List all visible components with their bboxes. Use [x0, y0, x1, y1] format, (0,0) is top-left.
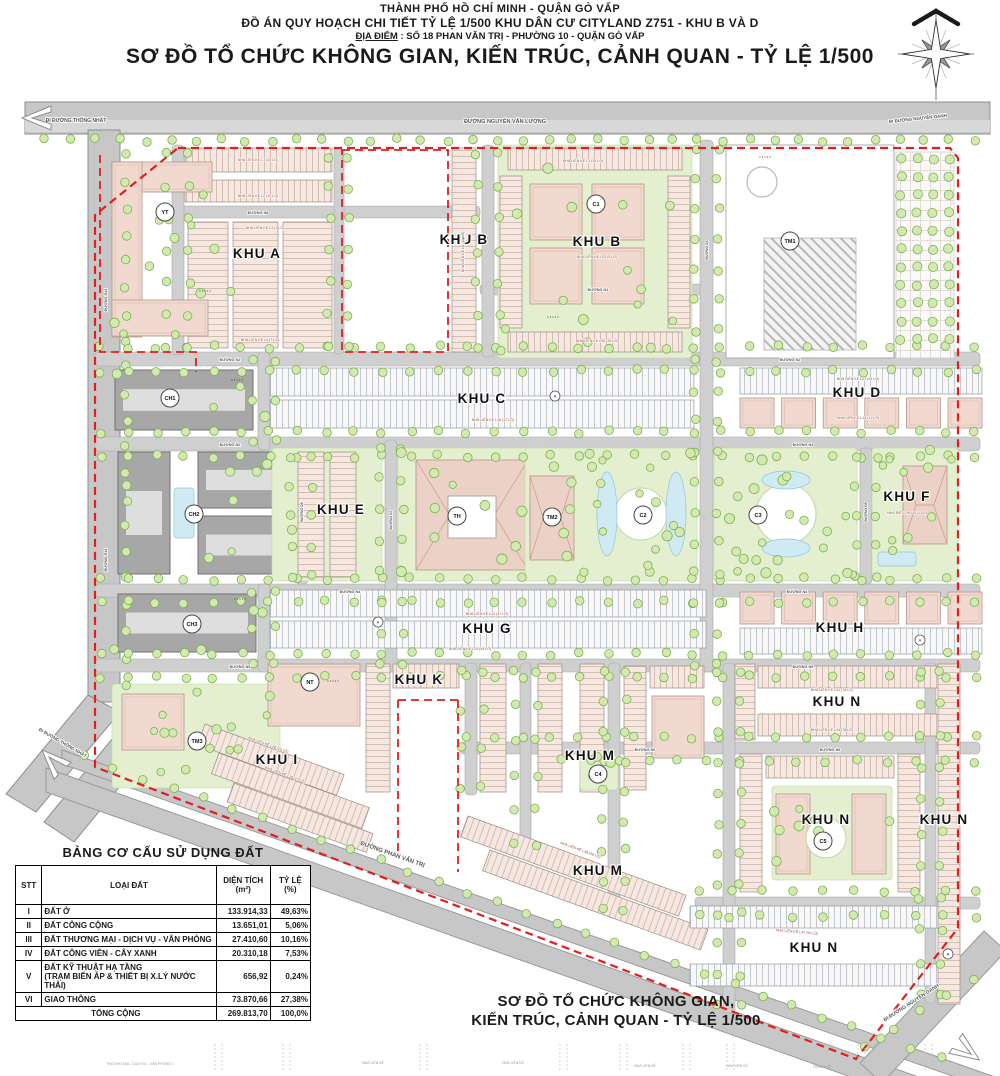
tree-icon	[192, 137, 201, 146]
tree-icon	[718, 652, 727, 661]
tree-icon	[531, 735, 540, 744]
entrance-dots: • • • • •	[199, 288, 211, 293]
land-use-total-row: TỔNG CỘNG269.813,70100,0%	[16, 1007, 311, 1021]
tree-icon	[773, 650, 782, 659]
cell-stt: V	[16, 961, 42, 993]
road-label: ĐƯỜNG N2	[780, 357, 801, 362]
col-stt: STT	[16, 866, 42, 905]
tree-icon	[896, 191, 905, 200]
marker-label: A	[919, 638, 922, 643]
tree-icon	[547, 673, 556, 682]
tree-icon	[713, 938, 722, 947]
tree-icon	[585, 449, 594, 458]
tree-icon	[327, 214, 336, 223]
land-use-header-row: STT LOẠI ĐẤT DIỆN TÍCH (m²) TỶ LỆ (%)	[16, 866, 311, 905]
tree-icon	[262, 459, 272, 469]
tree-icon	[971, 137, 980, 146]
tree-icon	[154, 429, 163, 438]
tree-icon	[714, 387, 723, 396]
tree-icon	[161, 343, 170, 352]
street	[465, 663, 477, 795]
tree-icon	[327, 277, 336, 286]
tree-icon	[794, 135, 803, 144]
tree-icon	[689, 599, 698, 608]
tree-icon	[755, 911, 764, 920]
tree-icon	[182, 674, 191, 683]
tree-icon	[598, 815, 607, 824]
building	[740, 398, 774, 428]
tree-icon	[349, 427, 358, 436]
tree-icon	[690, 629, 699, 638]
zone-label: KHU F	[883, 489, 930, 504]
tree-icon	[800, 573, 809, 582]
tree-icon	[843, 568, 852, 577]
tree-icon	[184, 214, 193, 223]
rowhouse-strip	[480, 664, 506, 792]
map-caption: SƠ ĐỒ TỔ CHỨC KHÔNG GIAN, KIẾN TRÚC, CẢN…	[440, 992, 792, 1030]
tree-icon	[95, 369, 104, 378]
tree-icon	[98, 597, 107, 606]
tree-icon	[476, 782, 485, 791]
tree-icon	[769, 807, 779, 817]
tree-icon	[375, 473, 384, 482]
tree-icon	[688, 674, 697, 683]
tree-icon	[912, 208, 921, 217]
tree-icon	[700, 970, 709, 979]
tree-icon	[110, 645, 119, 654]
road-label: ĐƯỜNG N8	[248, 210, 269, 215]
tree-icon	[695, 887, 704, 896]
tree-icon	[737, 819, 746, 828]
tree-icon	[350, 454, 359, 463]
tree-icon	[831, 575, 840, 584]
tree-icon	[248, 624, 257, 633]
tree-icon	[725, 913, 734, 922]
tree-icon	[853, 541, 862, 550]
tree-icon	[745, 671, 754, 680]
tree-icon	[471, 278, 480, 287]
parcel-boundary	[398, 700, 458, 872]
tree-icon	[645, 135, 654, 144]
tree-icon	[896, 335, 905, 344]
tree-icon	[170, 784, 179, 793]
tree-icon	[691, 509, 700, 518]
tree-icon	[880, 888, 889, 897]
tree-icon	[792, 758, 801, 767]
tree-icon	[942, 574, 951, 583]
tree-icon	[511, 541, 521, 551]
tree-icon	[183, 149, 192, 158]
cell-ty-le: 10,16%	[270, 933, 310, 947]
tree-icon	[724, 513, 734, 523]
facility-label: C4	[594, 772, 602, 778]
tree-icon	[160, 728, 169, 737]
tree-icon	[157, 768, 165, 776]
tree-icon	[686, 448, 696, 458]
tree-icon	[944, 135, 953, 144]
tree-icon	[324, 342, 333, 351]
tree-icon	[236, 451, 245, 460]
tree-icon	[210, 367, 219, 376]
tree-icon	[587, 462, 596, 471]
tree-icon	[972, 887, 981, 896]
building	[852, 794, 886, 874]
tree-icon	[343, 312, 352, 321]
tree-icon	[929, 173, 938, 182]
tree-icon	[124, 596, 133, 605]
building	[948, 398, 982, 428]
facility-label: NT	[306, 680, 314, 686]
tree-icon	[378, 598, 387, 607]
tree-icon	[210, 244, 219, 253]
tree-icon	[660, 365, 669, 374]
address-label: ĐỊA ĐIỂM	[355, 31, 397, 42]
tree-icon	[124, 673, 133, 682]
tree-icon	[206, 744, 214, 752]
tree-icon	[728, 886, 737, 895]
tree-icon	[885, 596, 894, 605]
tree-icon	[212, 725, 222, 735]
tree-icon	[785, 510, 793, 518]
tree-icon	[605, 344, 614, 353]
tree-icon	[716, 369, 725, 378]
tree-icon	[660, 732, 669, 741]
tree-icon	[152, 672, 161, 681]
road-label: ĐƯỜNG N5	[793, 664, 814, 669]
tree-icon	[464, 367, 473, 376]
tree-icon	[714, 758, 723, 767]
tree-icon	[859, 369, 868, 378]
tree-icon	[849, 911, 858, 920]
tree-icon	[859, 597, 868, 606]
tree-icon	[688, 651, 697, 660]
tree-icon	[935, 798, 944, 807]
tree-icon	[295, 344, 304, 353]
building	[782, 398, 816, 428]
sheet-title: SƠ ĐỒ TỔ CHỨC KHÔNG GIAN, KIẾN TRÚC, CẢN…	[0, 45, 1000, 69]
tree-icon	[847, 1022, 856, 1031]
tree-icon	[183, 312, 192, 321]
tree-icon	[376, 429, 385, 438]
section-strip-label: THƯƠNG MẠI - DỊCH VỤ - VĂN PHÒNG 1	[106, 1061, 174, 1066]
tree-icon	[350, 598, 359, 607]
tree-icon	[896, 263, 905, 272]
tree-icon	[831, 427, 840, 436]
tree-icon	[519, 453, 528, 462]
tree-icon	[897, 227, 906, 236]
tree-icon	[492, 367, 501, 376]
tree-icon	[480, 500, 490, 510]
tree-icon	[436, 341, 445, 350]
tree-icon	[434, 426, 443, 435]
road-label: ĐƯỜNG D14	[103, 548, 108, 572]
tree-icon	[916, 960, 925, 969]
tree-icon	[610, 938, 619, 947]
tree-icon	[122, 150, 131, 159]
tree-icon	[179, 576, 188, 585]
tree-icon	[187, 221, 195, 229]
tree-icon	[264, 426, 273, 435]
cell-ty-le: 49,63%	[270, 905, 310, 919]
tree-icon	[621, 877, 630, 886]
road-label: ĐƯỜNG D7	[388, 510, 393, 529]
tree-icon	[652, 545, 660, 553]
tree-icon	[945, 317, 954, 326]
caption-line1: SƠ ĐỒ TỔ CHỨC KHÔNG GIAN,	[440, 992, 792, 1011]
tree-icon	[308, 571, 317, 580]
tree-icon	[818, 1014, 827, 1023]
tree-icon	[573, 733, 582, 742]
road-label: ĐƯỜNG D14	[103, 288, 108, 312]
tree-icon	[897, 209, 906, 218]
tree-icon	[883, 758, 892, 767]
tree-icon	[376, 660, 385, 669]
tree-icon	[575, 597, 584, 606]
tree-icon	[522, 910, 531, 919]
tree-icon	[970, 453, 979, 462]
tree-icon	[575, 452, 584, 461]
tree-icon	[714, 267, 723, 276]
cell-stt: VI	[16, 993, 42, 1007]
street	[723, 663, 735, 1013]
tree-icon	[123, 232, 132, 241]
tree-icon	[945, 298, 954, 307]
tree-icon	[477, 744, 486, 753]
rowhouse-strip	[690, 964, 952, 986]
tree-icon	[897, 298, 906, 307]
tree-icon	[636, 490, 644, 498]
tree-icon	[887, 426, 896, 435]
tree-icon	[593, 500, 601, 508]
tree-icon	[208, 650, 217, 659]
tree-icon	[761, 568, 771, 578]
tree-icon	[818, 138, 827, 147]
header-address-line: ĐỊA ĐIỂM : SỐ 18 PHAN VĂN TRỊ - PHƯỜNG 1…	[0, 31, 1000, 42]
building	[865, 592, 899, 624]
tree-icon	[436, 599, 445, 608]
tree-icon	[885, 651, 894, 660]
tree-icon	[691, 355, 700, 364]
tree-icon	[122, 312, 131, 321]
tree-icon	[234, 745, 243, 754]
tree-icon	[744, 651, 753, 660]
cell-loai: GIAO THÔNG	[42, 993, 216, 1007]
tree-icon	[871, 135, 880, 144]
tree-icon	[774, 574, 783, 583]
tree-icon	[927, 513, 935, 521]
tree-icon	[772, 674, 781, 683]
tree-icon	[872, 483, 881, 492]
road-label: ĐƯỜNG N3	[793, 442, 814, 447]
tree-icon	[227, 287, 235, 295]
tree-icon	[915, 731, 924, 740]
block-label: NHÀ LIÊN KẾ L41 (78 LÔ)	[811, 687, 854, 692]
tree-icon	[829, 650, 838, 659]
tree-icon	[821, 758, 830, 767]
tree-icon	[532, 668, 541, 677]
tree-icon	[735, 697, 744, 706]
tree-icon	[662, 531, 672, 541]
tree-icon	[510, 771, 519, 780]
tree-icon	[874, 454, 883, 463]
tree-icon	[170, 233, 179, 242]
tree-icon	[121, 469, 130, 478]
tree-icon	[690, 567, 699, 576]
tree-icon	[599, 528, 607, 536]
tree-icon	[929, 280, 938, 289]
tree-icon	[490, 734, 499, 743]
tree-icon	[266, 651, 275, 660]
tree-icon	[580, 568, 588, 576]
tree-icon	[735, 849, 744, 858]
tree-icon	[217, 134, 226, 143]
tree-icon	[393, 134, 402, 143]
tree-icon	[690, 366, 699, 375]
tree-icon	[324, 182, 333, 191]
tree-icon	[162, 247, 171, 256]
tree-icon	[208, 674, 217, 683]
facility-label: C2	[639, 513, 646, 519]
tree-icon	[181, 428, 190, 437]
tree-icon	[749, 484, 759, 494]
tree-icon	[435, 648, 444, 657]
road-label: ĐƯỜNG N4	[340, 589, 362, 594]
tree-icon	[407, 452, 416, 461]
tree-icon	[719, 137, 728, 146]
tree-icon	[913, 190, 922, 199]
tree-icon	[497, 346, 506, 355]
tree-icon	[518, 598, 527, 607]
building	[823, 398, 857, 428]
tree-icon	[377, 855, 386, 864]
tree-icon	[945, 335, 954, 344]
tree-icon	[802, 426, 811, 435]
tree-icon	[877, 1034, 886, 1043]
block-label: NHÀ LIÊN KẾ L1 (10 LÔ)	[238, 157, 279, 162]
tree-icon	[849, 886, 858, 895]
tree-icon	[493, 897, 502, 906]
tree-icon	[941, 756, 950, 765]
marker-label: A	[554, 394, 557, 399]
tree-icon	[633, 426, 642, 435]
tree-icon	[929, 262, 938, 271]
tree-icon	[871, 512, 880, 521]
tree-icon	[929, 190, 938, 199]
tree-icon	[880, 911, 889, 920]
tree-icon	[646, 756, 655, 765]
tree-icon	[400, 505, 409, 514]
tree-icon	[597, 479, 605, 487]
tree-icon	[692, 328, 701, 337]
tree-icon	[687, 735, 696, 744]
land-use-row: IIIĐẤT THƯƠNG MẠI - DỊCH VỤ - VĂN PHÒNG2…	[16, 933, 311, 947]
tree-icon	[462, 733, 471, 742]
tree-icon	[746, 427, 755, 436]
tree-icon	[429, 468, 438, 477]
tree-icon	[112, 369, 122, 379]
tree-icon	[171, 331, 179, 339]
tree-icon	[408, 427, 417, 436]
tree-icon	[939, 827, 948, 836]
tree-icon	[819, 544, 827, 552]
tree-icon	[660, 596, 669, 605]
tree-icon	[713, 630, 722, 639]
tree-icon	[574, 648, 583, 657]
section-strip-label: NHÀ LIÊN KẾ	[634, 1063, 656, 1068]
tree-icon	[765, 757, 774, 766]
tree-icon	[856, 650, 865, 659]
tree-icon	[803, 652, 812, 661]
tree-icon	[511, 700, 520, 709]
tree-icon	[889, 546, 897, 554]
building	[530, 248, 582, 304]
tree-icon	[803, 599, 812, 608]
tree-icon	[659, 576, 668, 585]
tree-icon	[238, 368, 247, 377]
tree-icon	[599, 904, 608, 913]
land-use-table-title: BẢNG CƠ CẤU SỬ DỤNG ĐẤT	[15, 845, 311, 860]
tree-icon	[713, 911, 722, 920]
tree-icon	[945, 208, 954, 217]
tree-icon	[344, 245, 353, 254]
tree-icon	[150, 727, 157, 734]
tree-icon	[549, 462, 559, 472]
land-use-row: IVĐẤT CÔNG VIÊN - CÂY XANH20.310,187,53%	[16, 947, 311, 961]
tree-icon	[179, 599, 188, 608]
tree-icon	[120, 330, 128, 338]
tree-icon	[912, 281, 921, 290]
tree-icon	[712, 668, 721, 677]
tree-icon	[713, 970, 722, 979]
facility-label: TH	[453, 514, 460, 520]
tree-icon	[857, 429, 866, 438]
tree-icon	[553, 919, 562, 928]
tree-icon	[471, 150, 480, 159]
cell-stt: IV	[16, 947, 42, 961]
tree-icon	[942, 597, 951, 606]
road-label: ĐƯỜNG N6	[635, 747, 656, 752]
tree-icon	[403, 868, 412, 877]
tree-icon	[398, 660, 407, 669]
tree-icon	[464, 599, 473, 608]
tree-icon	[249, 606, 259, 616]
tree-icon	[237, 428, 246, 437]
tree-icon	[416, 136, 425, 145]
tree-icon	[193, 688, 201, 696]
tree-icon	[543, 163, 553, 173]
tree-icon	[575, 430, 584, 439]
tree-icon	[970, 759, 979, 768]
tree-icon	[162, 277, 171, 286]
tree-icon	[263, 712, 270, 719]
tree-icon	[738, 908, 747, 917]
tree-icon	[366, 137, 375, 146]
tree-icon	[633, 343, 642, 352]
tree-icon	[272, 436, 281, 445]
tree-icon	[752, 556, 761, 565]
tree-icon	[210, 341, 219, 350]
tree-icon	[344, 185, 353, 194]
road-label: ĐƯỜNG N2	[220, 442, 241, 447]
tree-icon	[271, 587, 280, 596]
address-value: : SỐ 18 PHAN VĂN TRỊ - PHƯỜNG 10 - QUẬN …	[398, 31, 645, 42]
tree-icon	[209, 454, 218, 463]
tree-icon	[774, 599, 783, 608]
cell-dien-tich: 27.410,60	[216, 933, 270, 947]
rowhouse-strip	[624, 666, 646, 790]
tree-icon	[464, 453, 473, 462]
tree-icon	[646, 343, 655, 352]
